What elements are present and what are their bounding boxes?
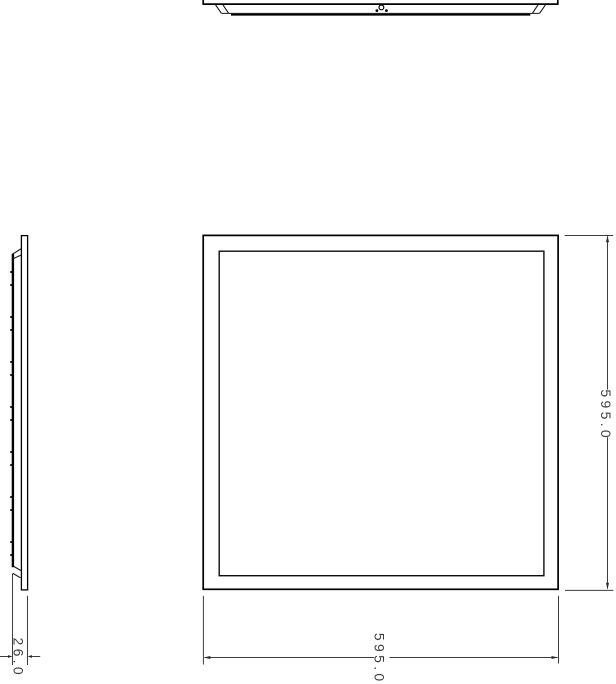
svg-text:26.0: 26.0 [10,637,26,677]
svg-text:595.0: 595.0 [598,389,614,441]
svg-text:595.0: 595.0 [372,633,388,684]
